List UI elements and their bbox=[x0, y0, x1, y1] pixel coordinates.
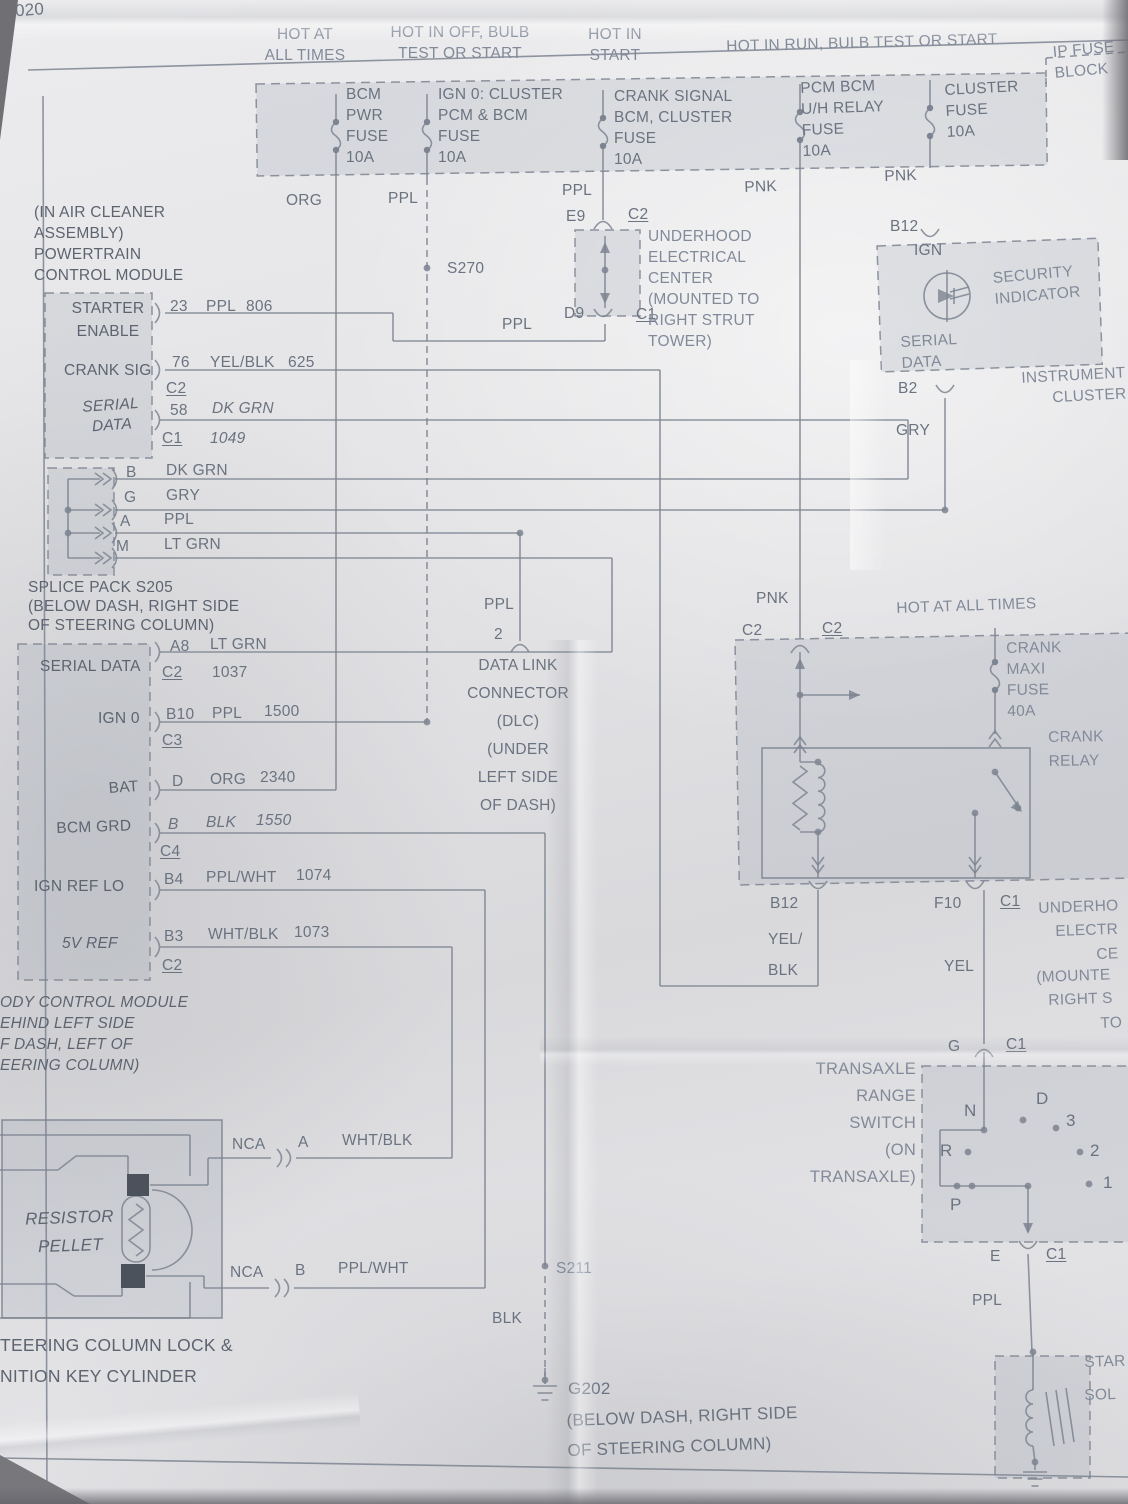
label-ic-serial-data: SERIAL DATA bbox=[900, 329, 959, 374]
label-fuse-ign0-cluster: IGN 0: CLUSTER PCM & BCM FUSE 10A bbox=[438, 84, 563, 168]
label-key-pin-b: B bbox=[295, 1260, 306, 1281]
label-conn-c2-relay-l: C2 bbox=[742, 620, 762, 641]
label-wire-ppl-806-mid: PPL bbox=[502, 314, 532, 335]
label-hot-at-all-times-2: HOT AT ALL TIMES bbox=[896, 593, 1037, 619]
label-starter-solenoid-line2: SOL bbox=[1084, 1384, 1116, 1406]
label-bcm-pin-ign0: IGN 0 bbox=[98, 708, 140, 729]
label-bcm-1500: 1500 bbox=[264, 701, 299, 722]
label-wire-pnk-top1: PNK bbox=[744, 176, 777, 198]
label-key-pplwht: PPL/WHT bbox=[338, 1258, 409, 1279]
label-g202-caption: (BELOW DASH, RIGHT SIDE OF STEERING COLU… bbox=[566, 1398, 799, 1466]
label-conn-g: G bbox=[948, 1036, 960, 1057]
label-starter-solenoid-line1: STAR bbox=[1084, 1351, 1126, 1373]
label-pos-1: 1 bbox=[1103, 1172, 1113, 1193]
label-bcm-whtblk: WHT/BLK bbox=[208, 924, 279, 945]
label-pcm-1049: 1049 bbox=[210, 428, 245, 449]
label-ip-fuse-block: IP FUSE BLOCK bbox=[1052, 37, 1117, 84]
label-conn-e: E bbox=[990, 1246, 1001, 1267]
label-fuse-cluster: CLUSTER FUSE 10A bbox=[944, 76, 1021, 143]
photo-of-wiring-diagram: 4/2020HOT AT ALL TIMESHOT IN OFF, BULB T… bbox=[0, 0, 1128, 1504]
label-pos-3: 3 bbox=[1066, 1110, 1076, 1131]
label-conn-f10: F10 bbox=[934, 893, 961, 914]
label-bcm-b4: B4 bbox=[164, 869, 183, 890]
label-wire-org-top: ORG bbox=[286, 190, 322, 211]
label-bcm-d: D bbox=[172, 771, 183, 792]
label-conn-c1-relay: C1 bbox=[1000, 891, 1020, 912]
label-bcm-pin-bat: BAT bbox=[108, 776, 139, 799]
label-ic-b12: B12 bbox=[890, 216, 918, 237]
label-feed-hot-off-bulb: HOT IN OFF, BULB TEST OR START bbox=[385, 22, 535, 64]
label-ic-instrument-cluster: INSTRUMENT CLUSTER bbox=[980, 362, 1127, 412]
label-bcm-pin-grd: BCM GRD bbox=[56, 815, 132, 839]
label-pcm-c1: C1 bbox=[162, 428, 182, 449]
label-wire-yelblk-relay: YEL/ BLK bbox=[768, 924, 803, 986]
label-splice-gry: GRY bbox=[166, 485, 200, 506]
label-pcm-58: 58 bbox=[170, 400, 188, 421]
label-pcm-yelblk: YEL/BLK bbox=[210, 352, 275, 373]
label-pcm-pin-crank-sig: CRANK SIG bbox=[64, 360, 152, 381]
label-wire-ppl-top2: PPL bbox=[562, 180, 592, 201]
label-splice-dkgrn: DK GRN bbox=[166, 460, 228, 481]
label-feed-hot-in-start: HOT IN START bbox=[580, 24, 650, 66]
label-conn-c2-uec-top: C2 bbox=[628, 204, 648, 225]
label-bcm-b10: B10 bbox=[166, 704, 194, 725]
label-splice-pin-b: B bbox=[126, 462, 137, 483]
label-wire-ppl-top1: PPL bbox=[388, 188, 418, 209]
label-uec2-line2: ELECTR bbox=[1055, 919, 1118, 942]
label-fuse-pcm-bcm-relay: PCM BCM U/H RELAY FUSE 10A bbox=[800, 75, 886, 162]
label-pcm-caption: (IN AIR CLEANER ASSEMBLY) POWERTRAIN CON… bbox=[34, 202, 183, 286]
label-key-pin-a: A bbox=[298, 1132, 309, 1153]
label-bcm-caption: ODY CONTROL MODULE EHIND LEFT SIDE F DAS… bbox=[0, 992, 188, 1076]
label-splice-pin-g: G bbox=[124, 487, 136, 508]
label-bcm-1073: 1073 bbox=[294, 922, 329, 943]
label-dlc-ppl: PPL bbox=[484, 594, 514, 615]
label-pcm-806: 806 bbox=[246, 296, 273, 317]
label-bcm-b: B bbox=[168, 814, 179, 835]
label-fuse-crank-signal: CRANK SIGNAL BCM, CLUSTER FUSE 10A bbox=[614, 86, 732, 170]
label-ic-ign: IGN bbox=[914, 240, 942, 261]
label-bcm-1550: 1550 bbox=[256, 810, 291, 831]
label-splice-s270: S270 bbox=[447, 258, 484, 279]
label-conn-d9: D9 bbox=[564, 303, 584, 324]
label-ground-g202: G202 bbox=[568, 1378, 611, 1399]
label-pcm-dkgrn: DK GRN bbox=[212, 398, 274, 419]
label-bcm-b3: B3 bbox=[164, 926, 183, 947]
label-transaxle-caption: TRANSAXLE RANGE SWITCH (ON TRANSAXLE) bbox=[788, 1056, 916, 1191]
label-wire-yel: YEL bbox=[944, 956, 974, 977]
label-bcm-pplwht: PPL/WHT bbox=[206, 867, 277, 888]
label-bcm-ltgrn: LT GRN bbox=[210, 634, 267, 655]
label-splice-caption: SPLICE PACK S205 (BELOW DASH, RIGHT SIDE… bbox=[28, 578, 239, 635]
label-ic-b2: B2 bbox=[898, 378, 917, 399]
label-conn-e9: E9 bbox=[566, 206, 585, 227]
schematic-labels-layer: 4/2020HOT AT ALL TIMESHOT IN OFF, BULB T… bbox=[0, 0, 1128, 1504]
label-bcm-ppl: PPL bbox=[212, 703, 242, 724]
label-conn-c1-trans-bot: C1 bbox=[1046, 1244, 1066, 1265]
label-uec2-line3: CE bbox=[1096, 943, 1119, 965]
label-date-note: 4/2020 bbox=[0, 0, 45, 23]
label-wire-ppl-bottom: PPL bbox=[972, 1290, 1002, 1311]
label-crank-maxi-fuse: CRANK MAXI FUSE 40A bbox=[1006, 637, 1063, 722]
label-bcm-c4: C4 bbox=[160, 841, 180, 862]
label-steering-caption: TEERING COLUMN LOCK & NITION KEY CYLINDE… bbox=[0, 1330, 233, 1392]
label-wire-blk-bottom: BLK bbox=[492, 1308, 522, 1329]
label-bcm-1074: 1074 bbox=[296, 865, 331, 886]
label-pcm-76: 76 bbox=[172, 352, 190, 373]
label-dlc-pin-2: 2 bbox=[494, 624, 503, 645]
label-pcm-c2: C2 bbox=[166, 378, 186, 399]
label-key-nca-a: NCA bbox=[232, 1134, 265, 1155]
label-bcm-pin-5v-ref: 5V REF bbox=[62, 933, 118, 954]
label-conn-c2-relay-r: C2 bbox=[822, 618, 842, 639]
label-resistor-pellet: RESISTOR PELLET bbox=[14, 1202, 126, 1262]
label-conn-b12-relay: B12 bbox=[770, 893, 798, 914]
label-bcm-c2a: C2 bbox=[162, 662, 182, 683]
label-pcm-pin-serial-data: SERIAL DATA bbox=[80, 394, 143, 438]
label-pos-d: D bbox=[1036, 1088, 1049, 1109]
label-bcm-2340: 2340 bbox=[260, 767, 295, 788]
label-bcm-pin-ign-ref-lo: IGN REF LO bbox=[34, 876, 124, 897]
label-pcm-ppl: PPL bbox=[206, 296, 236, 317]
label-uec2-line6: TO bbox=[1100, 1012, 1122, 1034]
label-uec2-line5: RIGHT S bbox=[1048, 988, 1113, 1011]
label-bcm-blk: BLK bbox=[206, 812, 236, 833]
label-key-whtblk: WHT/BLK bbox=[342, 1130, 413, 1151]
label-bcm-c3: C3 bbox=[162, 730, 182, 751]
label-splice-pin-a: A bbox=[120, 511, 131, 532]
label-bcm-c2b: C2 bbox=[162, 955, 182, 976]
label-wire-pnk-mid: PNK bbox=[756, 588, 789, 609]
label-conn-c1-trans-top: C1 bbox=[1006, 1034, 1026, 1055]
label-pcm-pin-starter-enable: STARTER ENABLE bbox=[66, 297, 150, 343]
label-splice-pin-m: M bbox=[116, 536, 129, 557]
label-uec2-line1: UNDERHO bbox=[1038, 895, 1119, 919]
label-wire-pnk-top2: PNK bbox=[884, 165, 917, 187]
label-uec-caption-top: UNDERHOOD ELECTRICAL CENTER (MOUNTED TO … bbox=[648, 226, 760, 352]
label-splice-s211: S211 bbox=[556, 1258, 592, 1279]
label-feed-hot-all-times: HOT AT ALL TIMES bbox=[250, 24, 360, 66]
label-feed-hot-run-bulb: HOT IN RUN, BULB TEST OR START bbox=[726, 29, 998, 57]
label-crank-relay: CRANK RELAY bbox=[1048, 725, 1104, 774]
label-bcm-1037: 1037 bbox=[212, 662, 247, 683]
label-bcm-org: ORG bbox=[210, 769, 246, 790]
label-pos-r: R bbox=[940, 1140, 953, 1161]
label-wire-gry: GRY bbox=[896, 420, 930, 441]
label-bcm-a8: A8 bbox=[170, 636, 189, 657]
label-splice-ltgrn: LT GRN bbox=[164, 534, 221, 555]
label-pcm-625: 625 bbox=[288, 352, 315, 373]
label-dlc-caption: DATA LINK CONNECTOR (DLC) (UNDER LEFT SI… bbox=[448, 652, 588, 820]
label-key-nca-b: NCA bbox=[230, 1262, 263, 1283]
label-bcm-pin-serial-data: SERIAL DATA bbox=[40, 656, 141, 677]
label-ic-security-indicator: SECURITY INDICATOR bbox=[992, 260, 1081, 309]
label-pos-2: 2 bbox=[1090, 1140, 1100, 1161]
label-pos-n: N bbox=[964, 1100, 977, 1121]
label-splice-ppl: PPL bbox=[164, 509, 194, 530]
label-fuse-bcm-pwr: BCM PWR FUSE 10A bbox=[346, 84, 388, 168]
label-pcm-23: 23 bbox=[170, 296, 188, 317]
label-pos-p: P bbox=[950, 1194, 962, 1215]
label-uec2-line4: (MOUNTE bbox=[1036, 964, 1111, 988]
